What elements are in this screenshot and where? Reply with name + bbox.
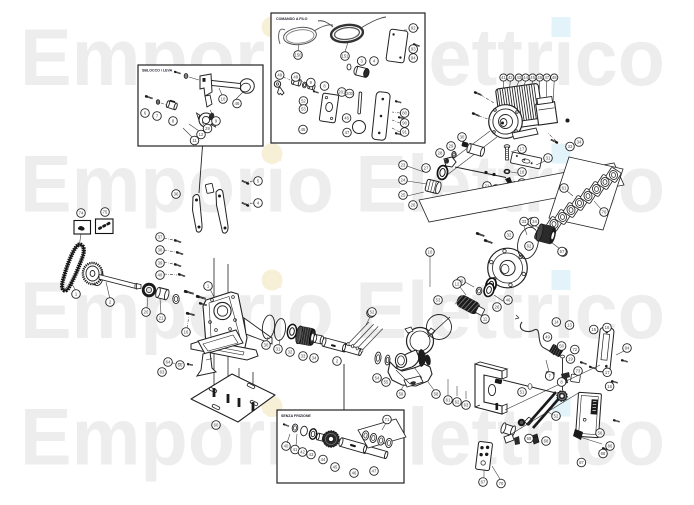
svg-text:16: 16 — [184, 330, 189, 335]
svg-text:52: 52 — [301, 99, 306, 104]
svg-text:51: 51 — [520, 390, 525, 395]
svg-text:23: 23 — [401, 163, 406, 168]
svg-text:38: 38 — [158, 248, 163, 253]
svg-text:87: 87 — [579, 460, 584, 465]
svg-text:14: 14 — [554, 320, 559, 325]
svg-text:50: 50 — [559, 344, 564, 349]
svg-text:48: 48 — [293, 75, 298, 80]
svg-text:47: 47 — [372, 469, 377, 474]
svg-text:70: 70 — [499, 481, 504, 486]
svg-text:67: 67 — [481, 480, 486, 485]
svg-text:61: 61 — [562, 186, 567, 191]
svg-text:49: 49 — [277, 73, 282, 78]
svg-text:62: 62 — [527, 244, 532, 249]
svg-text:SBLOCCO / LEVA: SBLOCCO / LEVA — [142, 69, 173, 73]
svg-text:63: 63 — [160, 370, 165, 375]
svg-text:92: 92 — [411, 26, 416, 31]
svg-text:63: 63 — [464, 403, 469, 408]
svg-text:54: 54 — [375, 376, 380, 381]
svg-text:93: 93 — [411, 47, 416, 52]
svg-text:11: 11 — [192, 138, 197, 143]
svg-text:53: 53 — [436, 298, 441, 303]
svg-text:36: 36 — [174, 192, 179, 197]
svg-text:12: 12 — [199, 132, 204, 137]
svg-text:69: 69 — [527, 436, 532, 441]
svg-text:46: 46 — [506, 298, 511, 303]
svg-text:52: 52 — [370, 310, 375, 315]
svg-text:76: 76 — [602, 210, 607, 215]
svg-text:32: 32 — [288, 350, 293, 355]
svg-text:200: 200 — [346, 91, 354, 96]
svg-text:40: 40 — [284, 444, 289, 449]
svg-text:19: 19 — [568, 357, 573, 362]
svg-text:60: 60 — [214, 423, 219, 428]
svg-text:151: 151 — [342, 54, 350, 59]
svg-text:12: 12 — [455, 282, 460, 287]
svg-text:46: 46 — [352, 471, 357, 476]
svg-text:34: 34 — [577, 140, 582, 145]
svg-text:80: 80 — [402, 111, 407, 116]
svg-text:45: 45 — [301, 127, 306, 132]
svg-text:62: 62 — [455, 400, 460, 405]
svg-text:30: 30 — [460, 135, 465, 140]
svg-text:49: 49 — [545, 335, 550, 340]
svg-text:27: 27 — [424, 166, 429, 171]
svg-text:59: 59 — [399, 392, 404, 397]
svg-text:46: 46 — [537, 75, 542, 80]
svg-text:43: 43 — [309, 452, 314, 457]
svg-text:29: 29 — [449, 144, 454, 149]
svg-text:18: 18 — [607, 384, 612, 389]
svg-text:10: 10 — [428, 250, 433, 255]
svg-text:47: 47 — [345, 130, 350, 135]
svg-text:39: 39 — [158, 261, 163, 266]
svg-text:44: 44 — [523, 75, 528, 80]
svg-text:84: 84 — [625, 346, 630, 351]
svg-text:47: 47 — [544, 75, 549, 80]
svg-text:20: 20 — [144, 310, 149, 315]
svg-text:33: 33 — [522, 219, 527, 224]
svg-text:33: 33 — [568, 144, 573, 149]
svg-text:40: 40 — [158, 273, 163, 278]
svg-text:91: 91 — [402, 130, 407, 135]
svg-text:73: 73 — [576, 369, 581, 374]
svg-text:31: 31 — [276, 347, 281, 352]
svg-text:88: 88 — [601, 451, 606, 456]
svg-text:72: 72 — [572, 347, 577, 352]
svg-text:28: 28 — [438, 151, 443, 156]
svg-text:53: 53 — [301, 107, 306, 112]
svg-text:43: 43 — [516, 75, 521, 80]
svg-text:94: 94 — [411, 56, 416, 61]
svg-text:24: 24 — [401, 178, 406, 183]
svg-text:44: 44 — [321, 457, 326, 462]
svg-text:46: 46 — [235, 101, 240, 106]
svg-text:41: 41 — [501, 75, 506, 80]
svg-text:55: 55 — [384, 380, 389, 385]
svg-text:48: 48 — [552, 75, 557, 80]
svg-text:57: 57 — [560, 249, 565, 254]
svg-text:61: 61 — [446, 398, 451, 403]
svg-text:74: 74 — [79, 211, 84, 216]
svg-text:32: 32 — [507, 233, 512, 238]
svg-text:37: 37 — [158, 235, 163, 240]
svg-text:52: 52 — [554, 414, 559, 419]
svg-text:11: 11 — [483, 317, 488, 322]
svg-text:18: 18 — [520, 170, 525, 175]
svg-text:17: 17 — [520, 147, 525, 152]
svg-text:29: 29 — [205, 126, 210, 131]
svg-text:90: 90 — [402, 121, 407, 126]
svg-text:68: 68 — [544, 439, 549, 444]
svg-text:42: 42 — [508, 75, 513, 80]
svg-text:SENZA FRIZIONE: SENZA FRIZIONE — [281, 414, 311, 418]
svg-text:58: 58 — [434, 392, 439, 397]
svg-text:42: 42 — [300, 450, 305, 455]
svg-text:15: 15 — [591, 327, 596, 332]
svg-text:17: 17 — [605, 370, 610, 375]
svg-text:41: 41 — [293, 447, 298, 452]
svg-text:26: 26 — [495, 305, 500, 310]
svg-text:34: 34 — [312, 356, 317, 361]
svg-text:25: 25 — [401, 193, 406, 198]
svg-text:26: 26 — [411, 203, 416, 208]
svg-text:33: 33 — [301, 354, 306, 359]
svg-text:46: 46 — [344, 116, 349, 121]
svg-text:30: 30 — [264, 343, 269, 348]
svg-text:45: 45 — [530, 75, 535, 80]
svg-text:150: 150 — [295, 53, 303, 58]
svg-text:34: 34 — [532, 219, 537, 224]
svg-text:21: 21 — [159, 316, 164, 321]
svg-text:56: 56 — [598, 431, 603, 436]
svg-text:13: 13 — [567, 323, 572, 328]
svg-text:86: 86 — [608, 444, 613, 449]
svg-text:31: 31 — [546, 156, 551, 161]
svg-text:75: 75 — [103, 210, 108, 215]
svg-text:64: 64 — [166, 360, 171, 365]
svg-text:16: 16 — [605, 325, 610, 330]
svg-text:COMANDO A FILO: COMANDO A FILO — [276, 17, 308, 21]
svg-text:10: 10 — [221, 97, 226, 102]
svg-text:45: 45 — [333, 465, 338, 470]
svg-text:71: 71 — [385, 417, 390, 422]
